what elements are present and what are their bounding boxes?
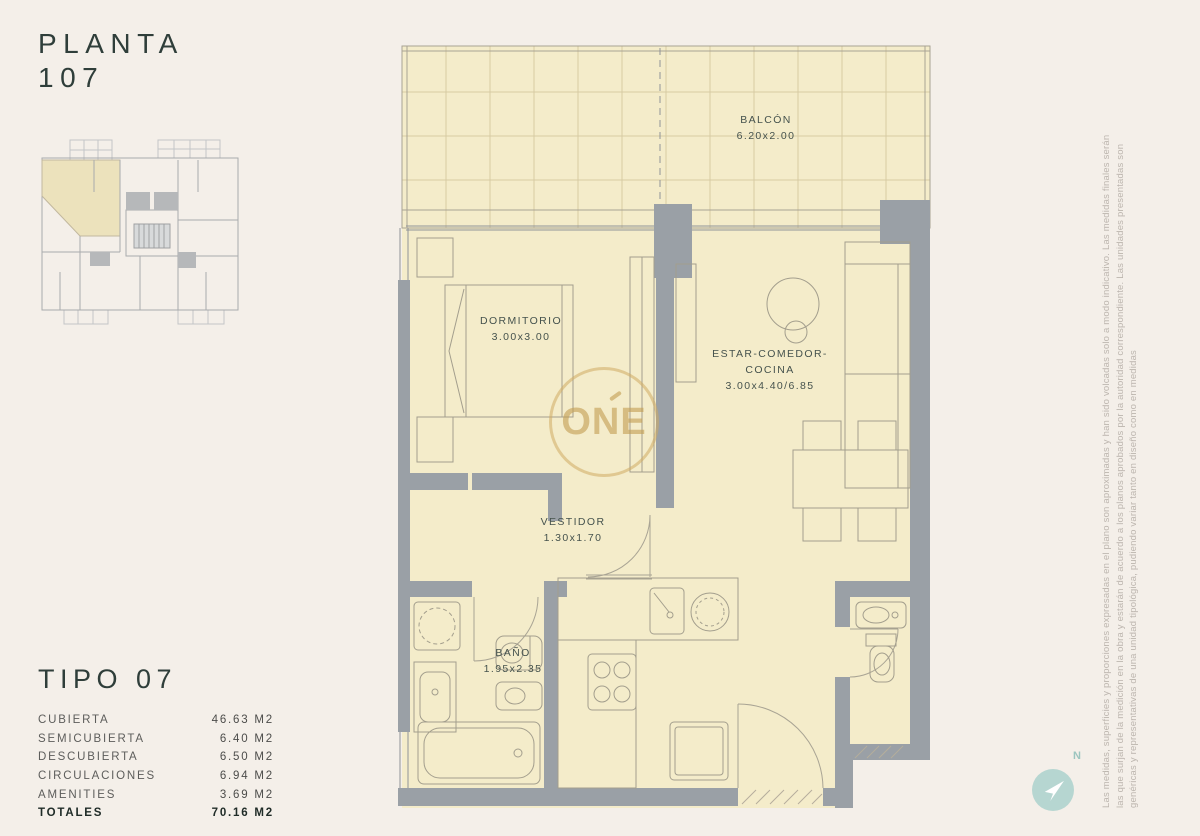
row-label: DESCUBIERTA xyxy=(38,751,139,763)
room-name: BAÑO xyxy=(484,645,543,661)
key-plan-highlight-unit xyxy=(42,160,120,236)
page-title: PLANTA 107 xyxy=(38,27,184,95)
one-logo-text: ONE xyxy=(561,401,646,444)
room-label-dormitorio: DORMITORIO 3.00x3.00 xyxy=(480,313,562,345)
room-dims: 6.20x2.00 xyxy=(737,128,796,144)
compass-north-label: N xyxy=(1073,750,1081,762)
one-logo: ONE xyxy=(549,367,659,477)
row-value: 6.94 M2 xyxy=(220,770,274,782)
row-label: TOTALES xyxy=(38,807,103,819)
table-row: CUBIERTA 46.63 M2 xyxy=(38,711,274,730)
table-row: CIRCULACIONES 6.94 M2 xyxy=(38,767,274,786)
row-value: 6.40 M2 xyxy=(220,733,274,745)
disclaimer-line: genéricas y representativas de una unida… xyxy=(1127,26,1141,808)
room-name: ESTAR-COMEDOR- xyxy=(712,346,828,362)
row-value: 3.69 M2 xyxy=(220,789,274,801)
area-table: CUBIERTA 46.63 M2 SEMICUBIERTA 6.40 M2 D… xyxy=(38,711,274,823)
row-label: SEMICUBIERTA xyxy=(38,733,145,745)
floorplan-sheet: { "header": { "title_line1": "PLANTA", "… xyxy=(0,0,1200,836)
north-compass xyxy=(1032,769,1074,811)
compass-arrow-icon xyxy=(1032,769,1074,811)
room-name: BALCÓN xyxy=(737,112,796,128)
room-dims: 1.30x1.70 xyxy=(541,530,606,546)
row-label: CUBIERTA xyxy=(38,714,109,726)
room-dims: 3.00x4.40/6.85 xyxy=(712,378,828,394)
room-label-estar: ESTAR-COMEDOR- COCINA 3.00x4.40/6.85 xyxy=(712,346,828,394)
table-row: DESCUBIERTA 6.50 M2 xyxy=(38,748,274,767)
table-row: AMENITIES 3.69 M2 xyxy=(38,785,274,804)
type-title: TIPO 07 xyxy=(38,664,177,695)
room-dims: 1.95x2.35 xyxy=(484,661,543,677)
room-name: COCINA xyxy=(712,362,828,378)
legal-disclaimer: Las medidas, superficies y proporciones … xyxy=(1100,26,1141,808)
page-title-line1: PLANTA xyxy=(38,27,184,61)
table-row-total: TOTALES 70.16 M2 xyxy=(38,804,274,823)
room-label-bano: BAÑO 1.95x2.35 xyxy=(484,645,543,677)
page-title-line2: 107 xyxy=(38,61,184,95)
room-name: VESTIDOR xyxy=(541,514,606,530)
key-plan-stairs xyxy=(134,224,170,248)
table-row: SEMICUBIERTA 6.40 M2 xyxy=(38,730,274,749)
row-value: 6.50 M2 xyxy=(220,751,274,763)
room-name: DORMITORIO xyxy=(480,313,562,329)
floor-plan xyxy=(398,32,932,808)
room-label-balcon: BALCÓN 6.20x2.00 xyxy=(737,112,796,144)
row-value: 70.16 M2 xyxy=(212,807,274,819)
room-dims: 3.00x3.00 xyxy=(480,329,562,345)
disclaimer-line: Las medidas, superficies y proporciones … xyxy=(1100,26,1114,808)
disclaimer-line: las que surjan de la medición en la obra… xyxy=(1114,26,1128,808)
key-plan xyxy=(30,132,252,332)
row-label: AMENITIES xyxy=(38,789,116,801)
room-label-vestidor: VESTIDOR 1.30x1.70 xyxy=(541,514,606,546)
row-label: CIRCULACIONES xyxy=(38,770,156,782)
row-value: 46.63 M2 xyxy=(212,714,274,726)
